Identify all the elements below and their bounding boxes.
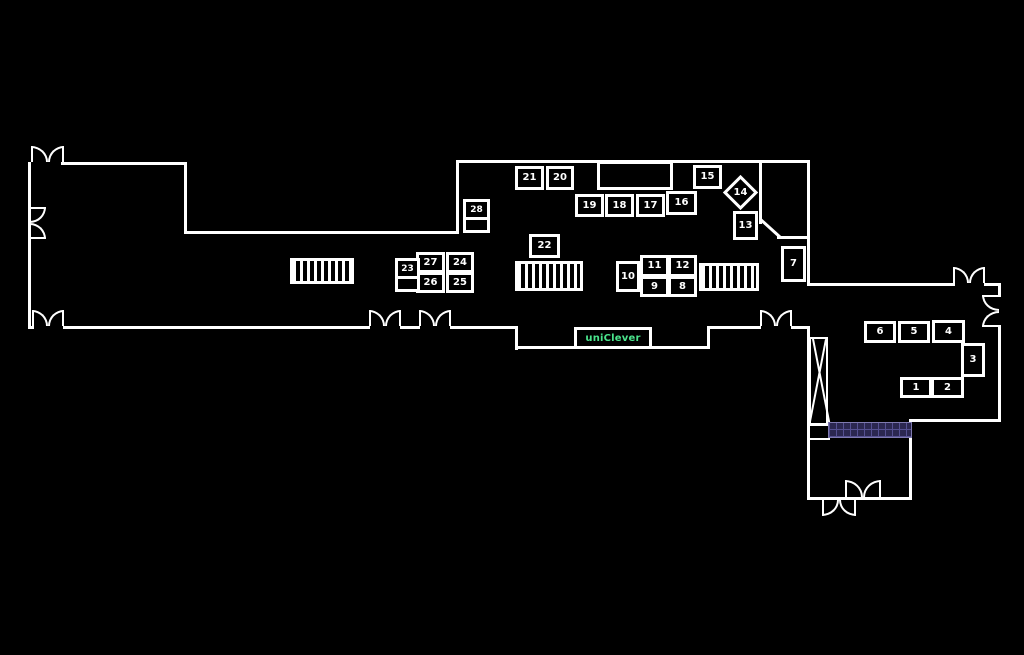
stand-18[interactable]: 18 <box>605 194 634 217</box>
door-leaf-icon <box>845 480 863 497</box>
wall <box>400 326 420 329</box>
unlabeled-area <box>597 161 673 190</box>
wall <box>28 162 31 329</box>
stand-14-label: 14 <box>734 187 748 197</box>
wall <box>707 326 710 349</box>
stand-26[interactable]: 26 <box>416 272 445 293</box>
door-leaf-icon <box>435 310 451 326</box>
stand-2[interactable]: 2 <box>931 377 964 398</box>
stand-11[interactable]: 11 <box>640 255 669 277</box>
floor-plan: uniClever 21 20 19 18 17 16 15 14 13 28 … <box>0 0 1024 655</box>
stand-24[interactable]: 24 <box>446 252 474 273</box>
hatched-block <box>699 263 759 291</box>
wall <box>450 326 518 329</box>
door-leaf-icon <box>419 310 435 326</box>
stairs-x-icon <box>812 339 830 424</box>
wall <box>61 162 187 165</box>
wall <box>909 419 1001 422</box>
door-leaf-icon <box>839 500 856 516</box>
door-leaf-icon <box>30 223 46 239</box>
door-leaf-icon <box>969 267 985 283</box>
stand-19[interactable]: 19 <box>575 194 604 217</box>
stairs-x-icon <box>809 339 827 424</box>
door-leaf-icon <box>760 310 776 326</box>
stand-16[interactable]: 16 <box>666 191 697 215</box>
door-leaf-icon <box>48 310 64 326</box>
hatched-block <box>515 261 583 291</box>
stand-14[interactable]: 14 <box>723 175 758 210</box>
stand-6[interactable]: 6 <box>864 321 896 343</box>
stand-15[interactable]: 15 <box>693 165 722 189</box>
stand-20[interactable]: 20 <box>546 166 574 190</box>
stand-9[interactable]: 9 <box>640 276 669 297</box>
stand-21[interactable]: 21 <box>515 166 544 190</box>
wall <box>63 326 370 329</box>
stairs <box>809 337 828 425</box>
stand-7[interactable]: 7 <box>781 246 806 282</box>
hatched-block <box>290 258 354 284</box>
door-leaf-icon <box>30 207 46 223</box>
stand-28[interactable]: 28 <box>463 199 490 233</box>
divider <box>398 276 417 279</box>
brand-sign: uniClever <box>574 327 652 349</box>
wall <box>807 160 810 286</box>
door-leaf-icon <box>863 480 881 497</box>
landing-box <box>808 424 830 440</box>
stand-3[interactable]: 3 <box>961 343 985 377</box>
door-leaf-icon <box>48 146 64 162</box>
stand-5[interactable]: 5 <box>898 321 930 343</box>
stand-17[interactable]: 17 <box>636 194 665 217</box>
door-leaf-icon <box>982 311 999 327</box>
wall <box>456 160 459 234</box>
door-leaf-icon <box>822 500 839 516</box>
door-leaf-icon <box>982 295 999 311</box>
stand-13[interactable]: 13 <box>733 211 758 240</box>
wall <box>759 160 762 224</box>
stand-27[interactable]: 27 <box>416 252 445 273</box>
wall <box>707 326 761 329</box>
stand-4[interactable]: 4 <box>932 320 965 343</box>
brand-sign-label: uniClever <box>585 333 640 344</box>
stand-28-label: 28 <box>466 202 487 218</box>
wall <box>791 326 809 329</box>
stand-23[interactable]: 23 <box>395 258 420 292</box>
stand-8[interactable]: 8 <box>668 276 697 297</box>
wall <box>998 325 1001 422</box>
stand-10[interactable]: 10 <box>616 261 640 292</box>
door-leaf-icon <box>776 310 792 326</box>
wall <box>184 231 459 234</box>
stand-1[interactable]: 1 <box>900 377 932 398</box>
highlighted-counter <box>828 422 912 438</box>
divider <box>466 217 487 220</box>
door-leaf-icon <box>953 267 969 283</box>
door-leaf-icon <box>32 310 48 326</box>
stand-23-label: 23 <box>398 261 417 277</box>
wall <box>777 236 810 239</box>
door-leaf-icon <box>369 310 385 326</box>
wall <box>807 283 955 286</box>
wall <box>184 162 187 234</box>
door-leaf-icon <box>31 146 48 162</box>
door-leaf-icon <box>385 310 401 326</box>
wall <box>28 326 34 329</box>
stand-25[interactable]: 25 <box>446 272 474 293</box>
stand-22[interactable]: 22 <box>529 234 560 258</box>
stand-12[interactable]: 12 <box>668 255 697 277</box>
